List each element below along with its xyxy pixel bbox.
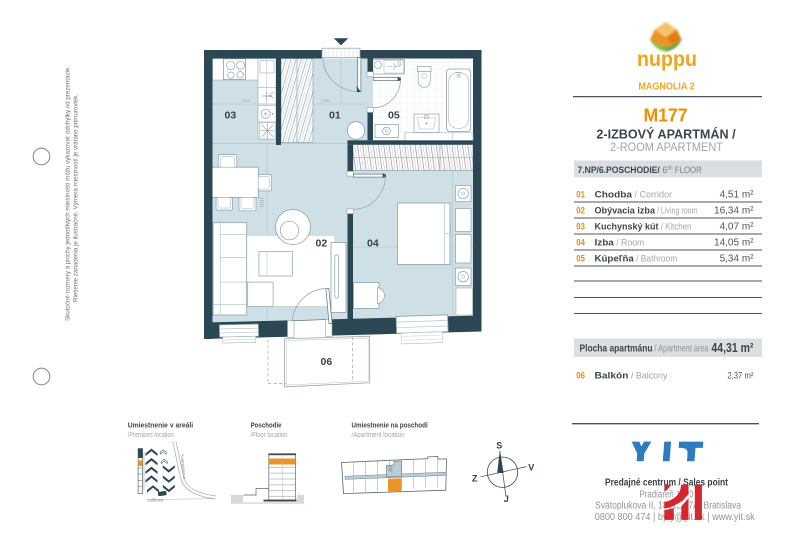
- svg-text:06: 06: [321, 356, 333, 368]
- svg-text:01: 01: [576, 190, 585, 201]
- svg-text:02: 02: [576, 206, 585, 217]
- svg-text:/ Corridor: / Corridor: [632, 190, 672, 201]
- svg-text:V: V: [528, 462, 534, 472]
- svg-text:/ Bathroom: / Bathroom: [634, 254, 677, 265]
- svg-text:/ Apartment area: / Apartment area: [653, 344, 709, 355]
- svg-text:Obývacia izba: Obývacia izba: [595, 206, 656, 217]
- svg-text:MAGNOLIA 2: MAGNOLIA 2: [638, 81, 695, 92]
- svg-text:Balkón: Balkón: [595, 371, 629, 382]
- svg-text:Skutočné rozmery a plochy jedn: Skutočné rozmery a plochy jednotlivých m…: [65, 66, 72, 321]
- svg-text:2.080: 2.080: [321, 99, 330, 103]
- svg-text:01: 01: [329, 110, 341, 122]
- svg-text:Leškova: Leškova: [148, 498, 164, 503]
- svg-text:/ Balcony: / Balcony: [629, 371, 668, 382]
- svg-text:02: 02: [316, 238, 328, 250]
- svg-text:S: S: [496, 441, 502, 451]
- svg-text:th: th: [668, 166, 673, 172]
- svg-text:7.NP/6.POSCHODIE/: 7.NP/6.POSCHODIE/: [578, 165, 661, 176]
- svg-text:Poschodie: Poschodie: [251, 421, 282, 430]
- svg-text:2-ROOM APARTMENT: 2-ROOM APARTMENT: [610, 140, 723, 154]
- svg-text:44,31 m²: 44,31 m²: [711, 341, 753, 355]
- svg-text:04: 04: [576, 238, 585, 249]
- svg-text:/ Living room: / Living room: [655, 206, 698, 217]
- svg-text:2,37 m²: 2,37 m²: [727, 371, 753, 382]
- svg-text:0800 800 474 | byty@yit.sk | w: 0800 800 474 | byty@yit.sk | www.yit.sk: [595, 512, 755, 523]
- svg-text:Chodba: Chodba: [595, 190, 633, 201]
- svg-text:14,05 m²: 14,05 m²: [714, 238, 754, 249]
- svg-text:Izba: Izba: [595, 238, 615, 249]
- svg-text:FLOOR: FLOOR: [675, 165, 702, 176]
- svg-text:/Premises location: /Premises location: [128, 430, 174, 439]
- svg-text:Kúpeľňa: Kúpeľňa: [595, 254, 635, 265]
- svg-text:4,51 m²: 4,51 m²: [720, 190, 755, 201]
- svg-text:Z: Z: [472, 474, 478, 484]
- svg-text:5,34 m²: 5,34 m²: [720, 254, 755, 265]
- svg-text:Umiestnenie v areáli: Umiestnenie v areáli: [128, 421, 193, 430]
- svg-text:1810: 1810: [242, 99, 250, 103]
- svg-text:04: 04: [367, 238, 379, 250]
- svg-text:6: 6: [662, 165, 667, 176]
- svg-text:Plocha apartmánu: Plocha apartmánu: [580, 344, 653, 355]
- svg-text:Umiestnenie na poschodí: Umiestnenie na poschodí: [352, 421, 429, 430]
- svg-text:/Apartment location: /Apartment location: [352, 430, 405, 439]
- svg-text:03: 03: [576, 222, 585, 233]
- svg-text:03: 03: [225, 110, 237, 122]
- svg-text:nuppu: nuppu: [637, 47, 697, 71]
- svg-text:05: 05: [388, 110, 400, 122]
- svg-text:05: 05: [576, 254, 585, 265]
- svg-text:/ Room: / Room: [614, 238, 645, 249]
- svg-text:/Floor location: /Floor location: [251, 430, 288, 439]
- svg-text:J: J: [504, 494, 509, 504]
- svg-text:4,07 m²: 4,07 m²: [720, 222, 755, 233]
- svg-text:/ Kitchen: / Kitchen: [659, 222, 692, 233]
- svg-text:16,34 m²: 16,34 m²: [714, 206, 754, 217]
- svg-text:M177: M177: [644, 106, 688, 126]
- svg-text:06: 06: [576, 371, 585, 382]
- svg-text:Kuchynský kút: Kuchynský kút: [595, 222, 660, 233]
- svg-text:Riešenie zariadenia je ilustra: Riešenie zariadenia je ilustračné. Výmer…: [73, 94, 80, 302]
